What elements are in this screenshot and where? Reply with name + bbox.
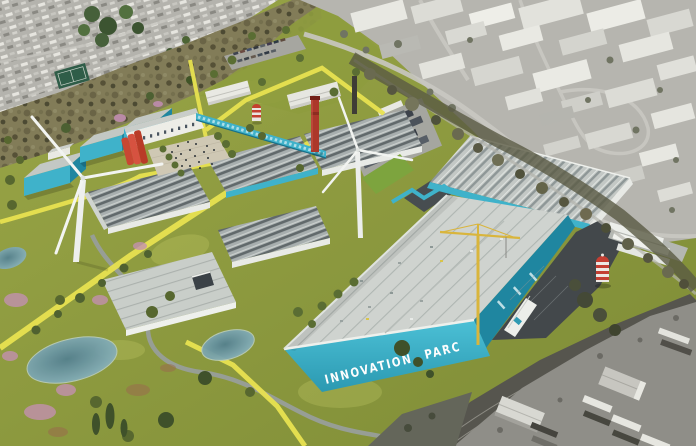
dark-chimney (352, 76, 357, 114)
aerial-rendering: INNOVATION PARC (0, 0, 696, 446)
aerial-rendering-canvas: INNOVATION PARC (0, 0, 696, 446)
